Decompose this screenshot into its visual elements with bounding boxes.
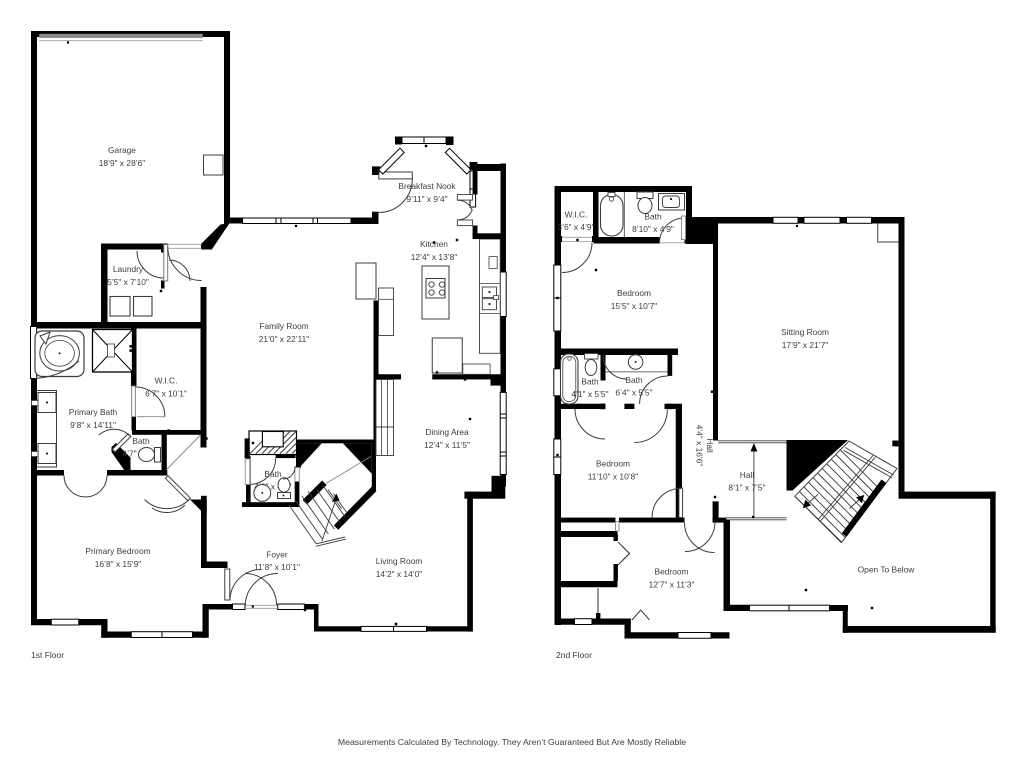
svg-text:18’9" x 28’6": 18’9" x 28’6" — [99, 158, 145, 168]
svg-text:4’1" x 5’5": 4’1" x 5’5" — [571, 389, 608, 399]
svg-text:Open To Below: Open To Below — [858, 565, 916, 575]
svg-text:Primary Bedroom: Primary Bedroom — [85, 546, 150, 556]
svg-text:14’2" x 14’0": 14’2" x 14’0" — [376, 569, 422, 579]
svg-text:6’7" x 10’1": 6’7" x 10’1" — [145, 389, 187, 399]
svg-text:21’0" x 22’11": 21’0" x 22’11" — [259, 334, 310, 344]
svg-text:12’4" x 11’5": 12’4" x 11’5" — [424, 440, 470, 450]
svg-text:6’4" x 5’5": 6’4" x 5’5" — [615, 388, 652, 398]
svg-text:Hall: Hall — [705, 438, 715, 453]
svg-text:Bedroom: Bedroom — [655, 567, 689, 577]
svg-text:Kitchen: Kitchen — [420, 239, 448, 249]
svg-text:Sitting Room: Sitting Room — [781, 327, 829, 337]
svg-text:Measurements Calculated By Tec: Measurements Calculated By Technology. T… — [338, 737, 686, 747]
svg-text:Bath: Bath — [581, 377, 599, 387]
svg-text:Bath: Bath — [264, 469, 282, 479]
svg-text:Bedroom: Bedroom — [617, 288, 651, 298]
svg-text:W.I.C.: W.I.C. — [155, 376, 178, 386]
svg-text:9’8" x 14’11": 9’8" x 14’11" — [70, 420, 116, 430]
svg-text:Garage: Garage — [108, 145, 136, 155]
svg-text:12’7" x 11’3": 12’7" x 11’3" — [649, 580, 695, 590]
svg-text:1st Floor: 1st Floor — [31, 650, 64, 660]
svg-text:Bath: Bath — [132, 436, 150, 446]
svg-text:12’4" x 13’8": 12’4" x 13’8" — [411, 252, 457, 262]
svg-text:Living Room: Living Room — [376, 556, 423, 566]
svg-text:Bath: Bath — [625, 375, 643, 385]
svg-text:16’8" x 15’9": 16’8" x 15’9" — [95, 559, 141, 569]
svg-text:9’11" x 9’4": 9’11" x 9’4" — [406, 194, 447, 204]
svg-text:4’4" x 16’6": 4’4" x 16’6" — [695, 425, 705, 467]
svg-text:Laundry: Laundry — [113, 264, 144, 274]
svg-text:Bath: Bath — [644, 212, 662, 222]
svg-text:8’10" x 4’9": 8’10" x 4’9" — [632, 224, 674, 234]
svg-text:Dining Area: Dining Area — [425, 427, 469, 437]
svg-text:5’5" x 7’10": 5’5" x 7’10" — [107, 277, 149, 287]
svg-text:Primary Bath: Primary Bath — [69, 407, 118, 417]
svg-text:11’10" x 10’8": 11’10" x 10’8" — [588, 472, 639, 482]
svg-text:Family Room: Family Room — [259, 321, 308, 331]
svg-text:Bedroom: Bedroom — [596, 459, 630, 469]
svg-text:Foyer: Foyer — [266, 550, 288, 560]
svg-text:15’5" x 10’7": 15’5" x 10’7" — [611, 301, 657, 311]
svg-text:2nd Floor: 2nd Floor — [556, 650, 592, 660]
svg-text:Breakfast Nook: Breakfast Nook — [398, 181, 456, 191]
svg-text:8’1" x 7’5": 8’1" x 7’5" — [728, 483, 765, 493]
svg-text:W.I.C.: W.I.C. — [565, 210, 588, 220]
svg-text:17’9" x 21’7": 17’9" x 21’7" — [782, 340, 828, 350]
svg-text:Hall: Hall — [740, 470, 755, 480]
svg-text:11’8" x 10’1": 11’8" x 10’1" — [254, 562, 300, 572]
svg-text:3’6" x 4’9": 3’6" x 4’9" — [557, 222, 594, 232]
